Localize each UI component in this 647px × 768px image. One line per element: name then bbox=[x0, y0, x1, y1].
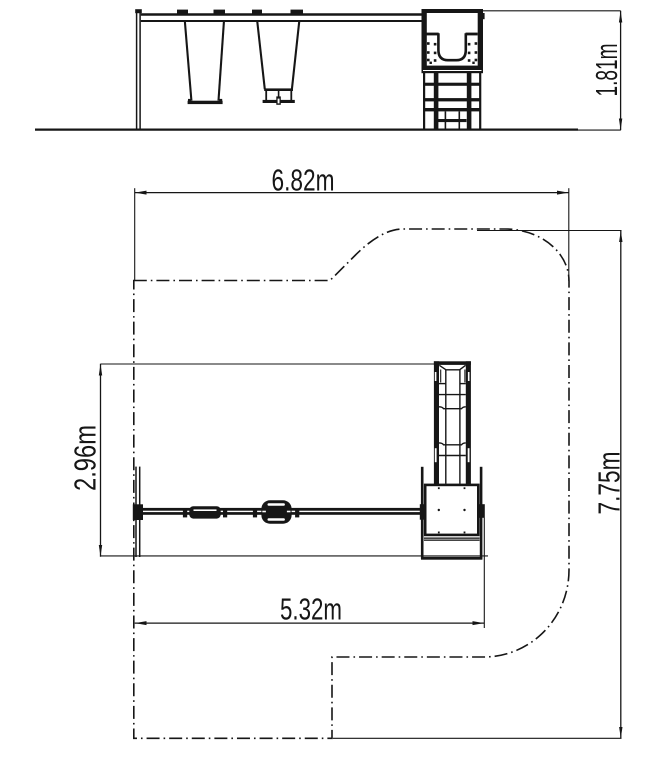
svg-text:1.81m: 1.81m bbox=[590, 44, 624, 97]
svg-text:5.32m: 5.32m bbox=[280, 593, 342, 627]
svg-text:7.75m: 7.75m bbox=[592, 452, 626, 515]
svg-text:2.96m: 2.96m bbox=[68, 425, 102, 491]
